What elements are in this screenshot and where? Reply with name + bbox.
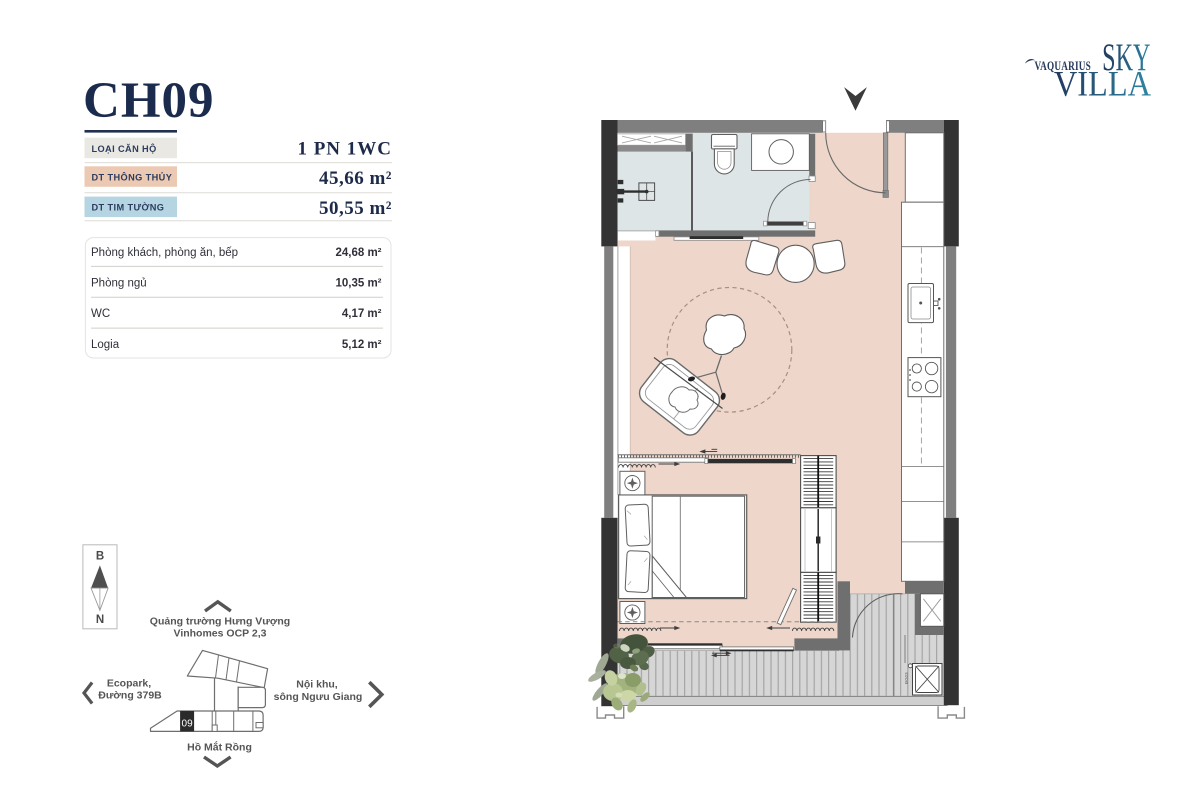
svg-text:09: 09 <box>182 719 194 730</box>
svg-text:Logia: Logia <box>91 339 120 351</box>
svg-text:Phòng ngủ: Phòng ngủ <box>91 278 147 290</box>
svg-text:Quảng trường Hưng Vượng: Quảng trường Hưng Vượng <box>150 616 290 628</box>
svg-text:Phòng khách, phòng ăn, bếp: Phòng khách, phòng ăn, bếp <box>91 247 238 259</box>
svg-text:Đường 379B: Đường 379B <box>98 690 162 702</box>
svg-text:B: B <box>96 551 104 563</box>
svg-text:50,55 m²: 50,55 m² <box>319 198 392 219</box>
svg-text:45,66 m²: 45,66 m² <box>319 168 392 189</box>
svg-text:24,68 m²: 24,68 m² <box>335 247 381 259</box>
svg-text:WC: WC <box>91 308 110 320</box>
svg-text:VILLA: VILLA <box>1054 64 1151 104</box>
svg-text:Nội khu,: Nội khu, <box>296 679 337 691</box>
svg-text:10,35 m²: 10,35 m² <box>335 278 381 290</box>
svg-text:CH09: CH09 <box>83 73 215 129</box>
svg-text:Vinhomes OCP 2,3: Vinhomes OCP 2,3 <box>174 628 267 640</box>
svg-text:sông Ngưu Giang: sông Ngưu Giang <box>274 691 363 703</box>
svg-text:LOẠI CĂN HỘ: LOẠI CĂN HỘ <box>92 143 157 154</box>
svg-text:ĐG03: ĐG03 <box>904 672 909 684</box>
svg-text:Hồ Mắt Rồng: Hồ Mắt Rồng <box>187 741 252 754</box>
svg-text:N: N <box>96 614 104 626</box>
svg-text:DT TIM TƯỜNG: DT TIM TƯỜNG <box>92 202 165 213</box>
svg-text:4,17 m²: 4,17 m² <box>342 308 382 320</box>
svg-text:5,12 m²: 5,12 m² <box>342 339 382 351</box>
svg-text:Ecopark,: Ecopark, <box>107 678 151 690</box>
svg-text:DT THÔNG THỦY: DT THÔNG THỦY <box>92 171 173 182</box>
svg-text:1 PN 1WC: 1 PN 1WC <box>297 139 392 160</box>
